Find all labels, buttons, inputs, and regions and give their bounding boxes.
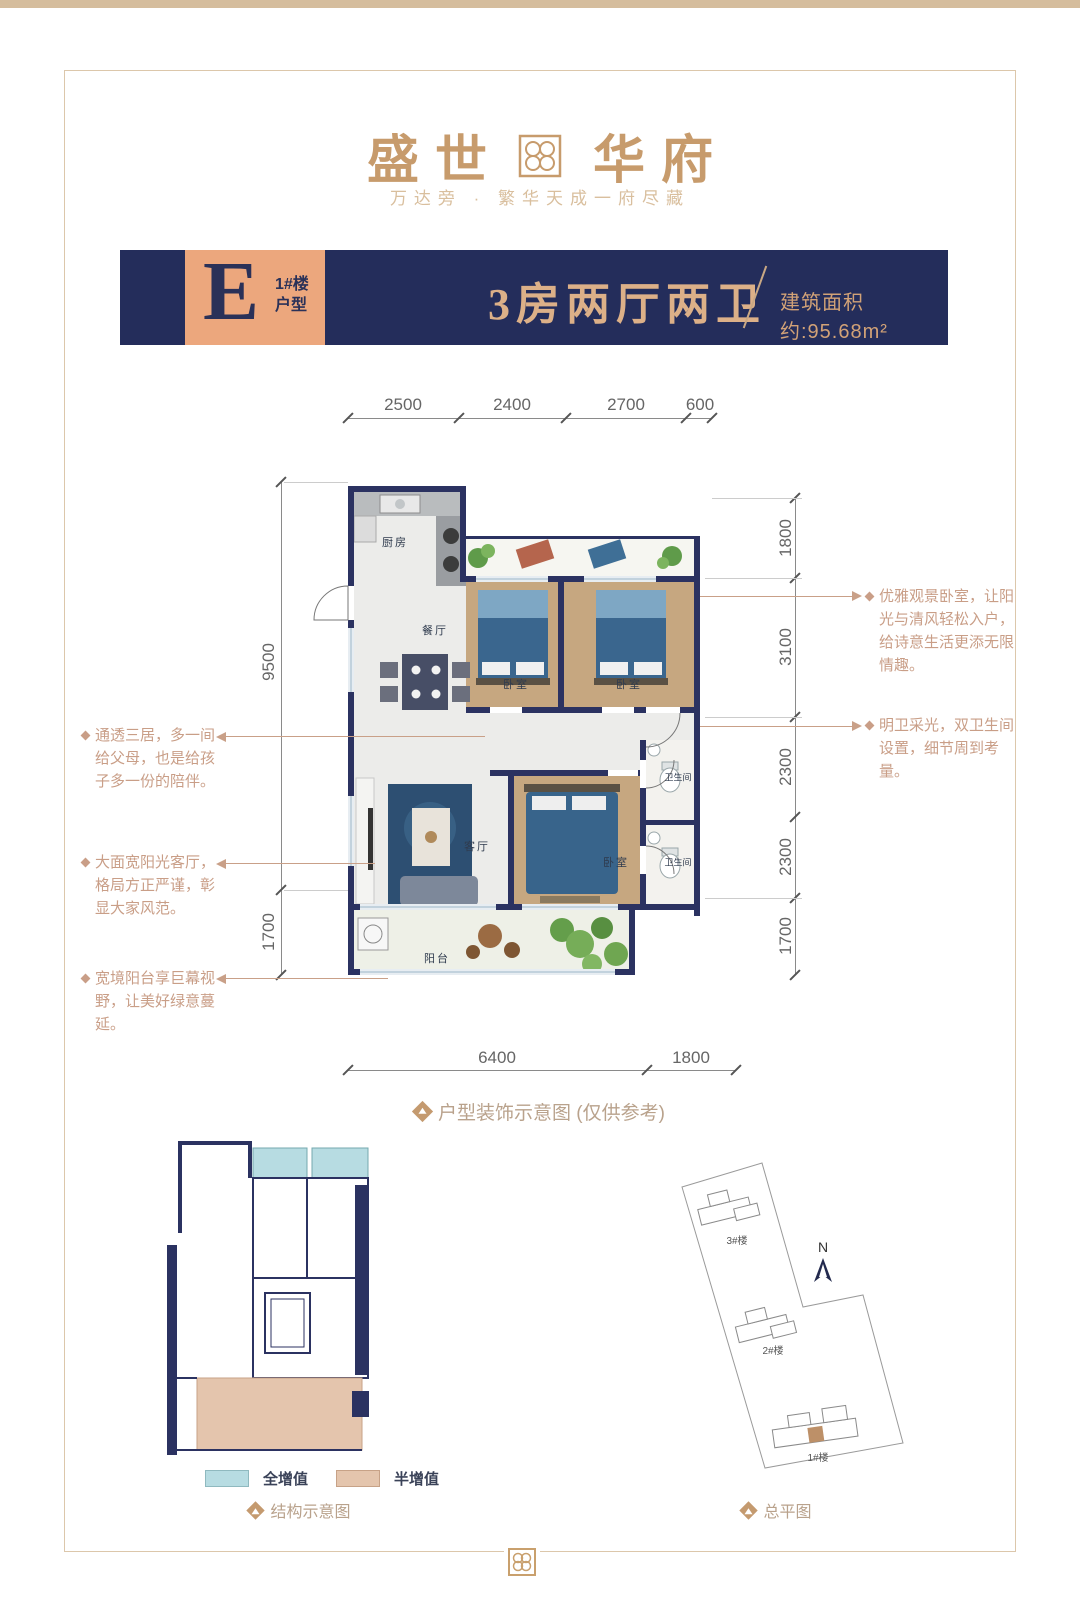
frame-seal-icon [504, 1544, 540, 1580]
dim-right-5: 1700 [776, 901, 796, 971]
site-plan: 3#楼 2#楼 1#楼 N [655, 1140, 945, 1470]
half-value-area [197, 1378, 362, 1450]
frame-corner-ornament [0, 6, 1080, 8]
unit-building-type: 1#楼 户型 [275, 274, 309, 316]
north-label: N [818, 1239, 828, 1255]
type-label: 户型 [275, 295, 309, 316]
building-1-label: 1#楼 [807, 1451, 828, 1464]
bullet-icon [81, 858, 91, 868]
dim-bottom-2: 1800 [651, 1048, 731, 1068]
dim-right-1: 1800 [776, 503, 796, 573]
bed-icon [594, 590, 668, 685]
brand-title-right: 华府 [577, 118, 729, 193]
plan-caption: 户型装饰示意图 (仅供参考) [390, 1098, 690, 1125]
full-value-area [253, 1148, 307, 1178]
unit-letter-block: E 1#楼 户型 [185, 250, 325, 345]
room-label-master: 卧室 [603, 854, 629, 870]
callout-right-2: 明卫采光，双卫生间设置，细节周到考量。 [866, 714, 1016, 783]
callout-text: 宽境阳台享巨幕视野，让美好绿意蔓延。 [95, 967, 228, 1036]
legend-label-half: 半增值 [394, 1468, 439, 1489]
dim-top-1: 2500 [363, 395, 443, 415]
arrow-right-icon [852, 721, 862, 731]
dim-top-2: 2400 [472, 395, 552, 415]
dim-left-1: 9500 [259, 627, 279, 697]
bed-icon [476, 590, 550, 685]
room-label-kitchen: 厨房 [382, 534, 408, 550]
legend-swatch-half [336, 1470, 380, 1487]
room-label-bedroom1: 卧室 [503, 676, 529, 692]
caption-diamond-icon [740, 1501, 758, 1519]
full-value-area [312, 1148, 368, 1178]
dim-right-4: 2300 [776, 822, 796, 892]
siteplan-caption: 总平图 [712, 1498, 842, 1522]
callout-left-3: 宽境阳台享巨幕视野，让美好绿意蔓延。 [82, 967, 228, 1036]
bullet-icon [81, 974, 91, 984]
dim-left-2: 1700 [259, 897, 279, 967]
dim-line-top [348, 418, 712, 419]
tv-cabinet-icon [356, 778, 374, 904]
washing-machine-icon [358, 918, 388, 950]
building-2-label: 2#楼 [762, 1344, 783, 1357]
room-label-living: 客厅 [464, 838, 490, 854]
brand-seal-icon [517, 133, 563, 179]
building-3-label: 3#楼 [726, 1234, 747, 1247]
dim-line-bottom [348, 1070, 736, 1071]
structure-caption: 结构示意图 [220, 1498, 380, 1522]
arrow-right-icon [852, 591, 862, 601]
building-3-footprint [695, 1184, 760, 1229]
building-1-footprint [770, 1404, 858, 1447]
callout-text: 通透三居，多一间给父母，也是给孩子多一份的陪伴。 [95, 724, 228, 793]
area-text: 建筑面积约:95.68m² [780, 286, 948, 344]
room-label-bath2: 卫生间 [664, 856, 691, 869]
bullet-icon [865, 592, 875, 602]
floor-plan-drawing [308, 478, 715, 978]
dim-bottom-1: 6400 [457, 1048, 537, 1068]
legend-label-full: 全增值 [263, 1468, 308, 1489]
highlighted-unit [807, 1426, 824, 1443]
poster-page: 盛世 华府 万达旁 · 繁华天成一府尽藏 E 1#楼 户型 3房两厅两卫 建筑面… [0, 0, 1080, 1620]
brand-title: 盛世 华府 [0, 118, 1080, 193]
layout-title: 3房两厅两卫 [488, 268, 766, 332]
callout-right-1: 优雅观景卧室，让阳光与清风轻松入户，给诗意生活更添无限情趣。 [866, 585, 1016, 677]
bullet-icon [81, 731, 91, 741]
structure-legend: 全增值 半增值 [205, 1468, 453, 1489]
structure-diagram [165, 1128, 400, 1463]
caption-diamond-icon [247, 1501, 265, 1519]
building-2-footprint [733, 1301, 797, 1346]
room-label-bedroom2: 卧室 [616, 676, 642, 692]
north-arrow-icon [814, 1258, 832, 1282]
brand-title-left: 盛世 [351, 118, 503, 193]
room-label-dining: 餐厅 [422, 622, 448, 638]
callout-left-1: 通透三居，多一间给父母，也是给孩子多一份的陪伴。 [82, 724, 228, 793]
legend-swatch-full [205, 1470, 249, 1487]
dim-right-3: 2300 [776, 732, 796, 802]
plan-caption-text: 户型装饰示意图 (仅供参考) [438, 1098, 665, 1125]
callout-text: 优雅观景卧室，让阳光与清风轻松入户，给诗意生活更添无限情趣。 [879, 585, 1016, 677]
arrow-left-icon [216, 974, 226, 984]
callout-left-2: 大面宽阳光客厅，格局方正严谨，彰显大家风范。 [82, 851, 228, 920]
bullet-icon [865, 721, 875, 731]
arrow-left-icon [216, 859, 226, 869]
room-label-balcony: 阳台 [424, 950, 450, 966]
unit-header-bar: E 1#楼 户型 3房两厅两卫 建筑面积约:95.68m² [120, 250, 948, 345]
building-no: 1#楼 [275, 274, 309, 295]
brand-subtitle: 万达旁 · 繁华天成一府尽藏 [0, 184, 1080, 209]
callout-text: 明卫采光，双卫生间设置，细节周到考量。 [879, 714, 1016, 783]
dim-top-3: 2700 [586, 395, 666, 415]
dim-right-2: 3100 [776, 612, 796, 682]
room-label-bath1: 卫生间 [664, 771, 691, 784]
unit-letter: E [203, 244, 259, 339]
bed-icon [524, 784, 620, 903]
siteplan-caption-text: 总平图 [763, 1498, 811, 1522]
dim-line-left [281, 482, 282, 975]
dim-top-4: 600 [662, 395, 738, 415]
arrow-left-icon [216, 732, 226, 742]
caption-diamond-icon [412, 1101, 433, 1122]
sofa-icon [400, 876, 478, 906]
structure-caption-text: 结构示意图 [270, 1498, 350, 1522]
callout-text: 大面宽阳光客厅，格局方正严谨，彰显大家风范。 [95, 851, 228, 920]
